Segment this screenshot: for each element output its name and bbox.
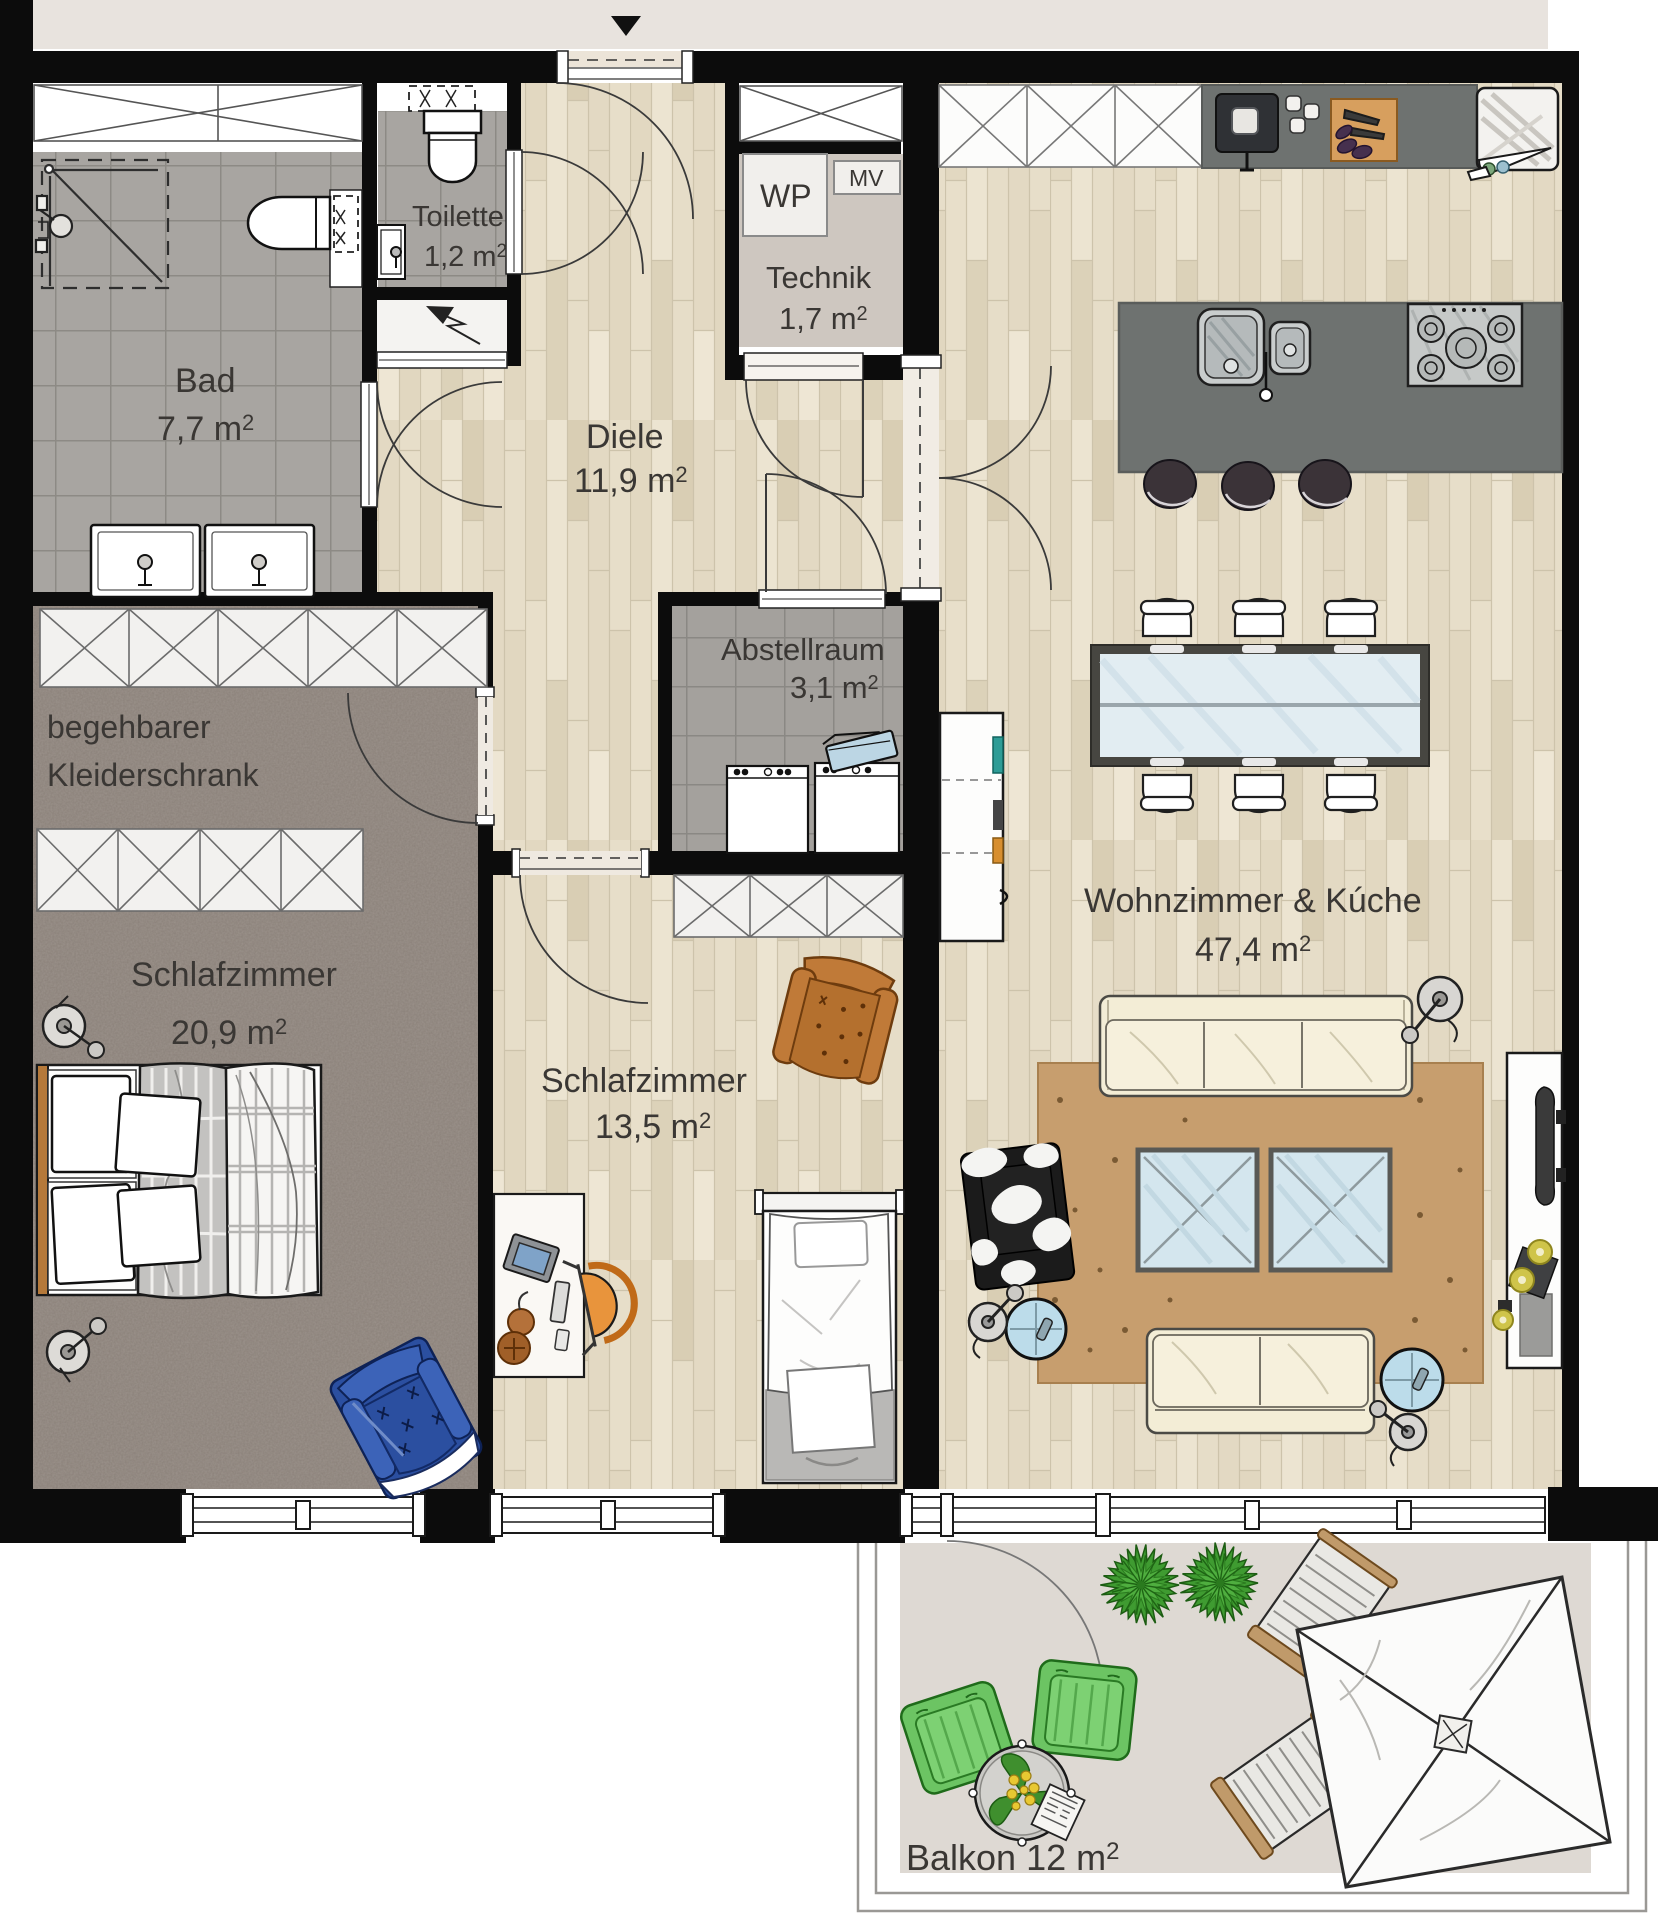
svg-text:begehbarer: begehbarer xyxy=(47,709,211,745)
svg-text:Bad: Bad xyxy=(175,362,236,400)
svg-text:7,7 m2: 7,7 m2 xyxy=(157,410,254,448)
svg-text:Schlafzimmer: Schlafzimmer xyxy=(131,956,337,994)
svg-text:MV: MV xyxy=(849,165,884,191)
svg-text:Diele: Diele xyxy=(586,418,663,456)
svg-text:Abstellraum: Abstellraum xyxy=(721,632,885,667)
svg-text:1,7 m2: 1,7 m2 xyxy=(779,301,868,336)
svg-text:13,5 m2: 13,5 m2 xyxy=(595,1108,711,1146)
svg-text:20,9 m2: 20,9 m2 xyxy=(171,1014,287,1052)
svg-text:1,2 m2: 1,2 m2 xyxy=(424,241,507,273)
svg-text:Wohnzimmer & Kúche: Wohnzimmer & Kúche xyxy=(1084,882,1422,920)
svg-text:Kleiderschrank: Kleiderschrank xyxy=(47,757,260,793)
svg-text:Schlafzimmer: Schlafzimmer xyxy=(541,1062,747,1100)
svg-text:3,1 m2: 3,1 m2 xyxy=(790,670,879,705)
svg-text:47,4 m2: 47,4 m2 xyxy=(1195,931,1311,969)
svg-text:Balkon 12 m2: Balkon 12 m2 xyxy=(906,1837,1119,1878)
svg-text:WP: WP xyxy=(760,178,812,214)
svg-text:Technik: Technik xyxy=(766,260,872,295)
svg-text:Toilette: Toilette xyxy=(412,201,504,233)
svg-text:11,9 m2: 11,9 m2 xyxy=(574,462,688,500)
